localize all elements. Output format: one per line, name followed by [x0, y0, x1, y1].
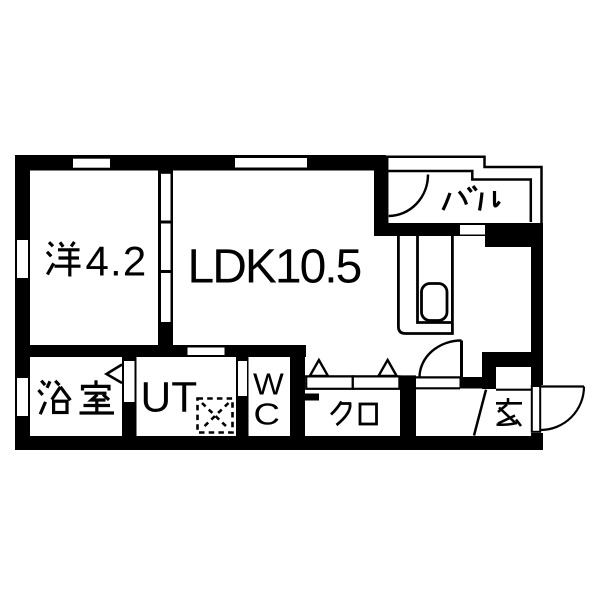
svg-text:4.2: 4.2 — [86, 238, 148, 285]
svg-text:UT: UT — [141, 375, 198, 422]
svg-text:W: W — [253, 367, 284, 402]
svg-text:LDK10.5: LDK10.5 — [188, 241, 361, 294]
svg-text:C: C — [254, 398, 280, 431]
